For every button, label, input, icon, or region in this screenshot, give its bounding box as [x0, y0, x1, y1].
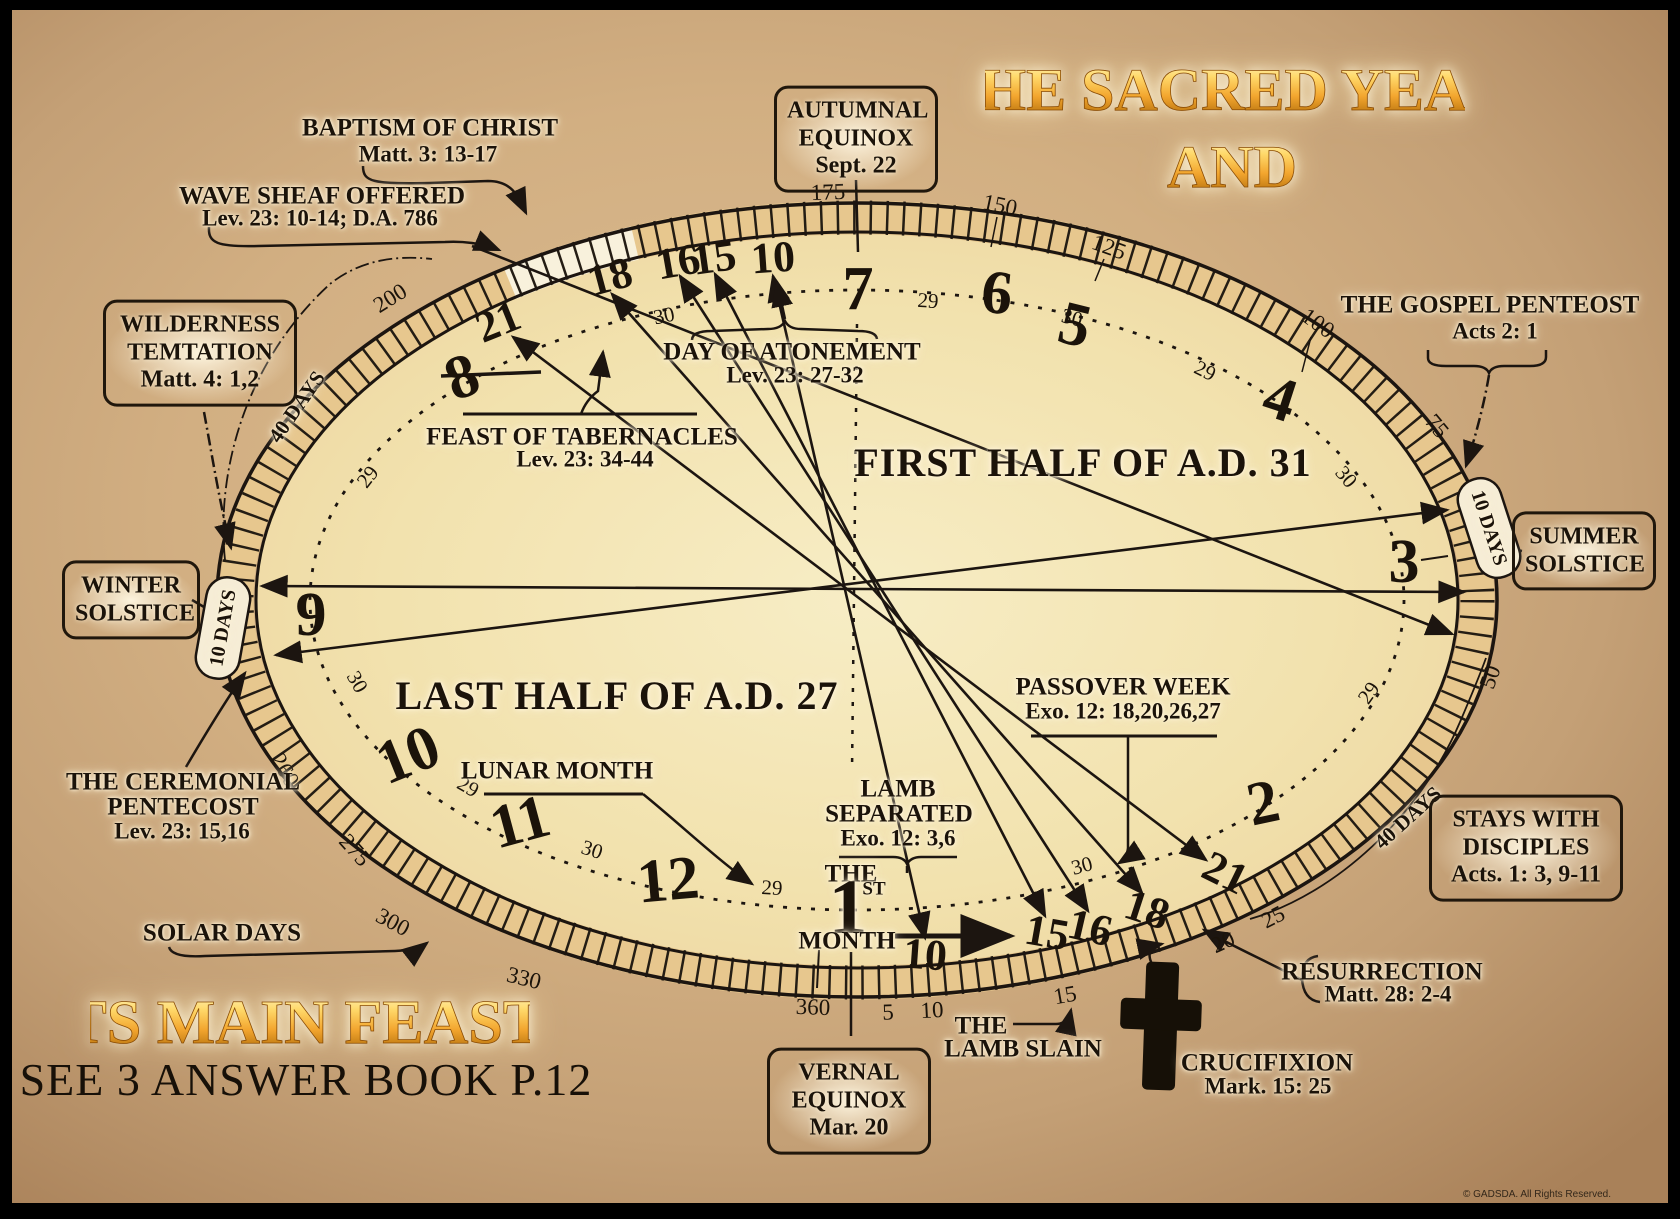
- winter-line1: WINTER: [75, 572, 187, 600]
- lunar-7-6: 29: [917, 290, 939, 312]
- summer-solstice-box: SUMMER SOLSTICE: [1512, 511, 1656, 590]
- autumnal-box: AUTUMNAL EQUINOX Sept. 22: [774, 86, 938, 193]
- stays-ref: Acts. 1: 3, 9-11: [1442, 862, 1610, 890]
- autumnal-line2: EQUINOX: [787, 125, 925, 153]
- lamb-slain-pointer: [1013, 1010, 1071, 1024]
- month-7: 7: [843, 258, 874, 320]
- crucifixion-title: CRUCIFIXION: [1181, 1051, 1353, 1076]
- poster: THE SACRED YEAR AND ITS MAIN FEASTS SEE …: [0, 0, 1680, 1219]
- see-answer-book: SEE 3 ANSWER BOOK P.12: [20, 1057, 593, 1103]
- last-half-label: LAST HALF OF A.D. 27: [395, 676, 838, 716]
- gospel-bracket: [1428, 350, 1546, 373]
- scale-10: 10: [920, 998, 944, 1022]
- first-half-label: FIRST HALF OF A.D. 31: [854, 443, 1311, 483]
- wilderness-line2: TEMTATION: [116, 339, 284, 367]
- winter-line2: SOLSTICE: [75, 600, 187, 628]
- tishri-day-15: 15: [689, 233, 739, 283]
- month-3: 3: [1389, 531, 1420, 593]
- resurrection-ref: Matt. 28: 2-4: [1324, 983, 1451, 1006]
- wilderness-ref: Matt. 4: 1,2: [116, 367, 284, 395]
- atonement-title: DAY OF ATONEMENT: [663, 340, 920, 365]
- gospel-ref: Acts 2: 1: [1452, 320, 1538, 343]
- feasts-title: ITS MAIN FEASTS: [90, 985, 530, 1065]
- scale-360: 360: [795, 995, 830, 1019]
- wave-sheaf-ref: Lev. 23: 10-14; D.A. 786: [202, 207, 438, 230]
- vernal-box: VERNAL EQUINOX Mar. 20: [767, 1048, 931, 1155]
- ceremonial-line2: PENTECOST: [107, 795, 258, 820]
- scale-15: 15: [1052, 982, 1079, 1009]
- copyright: © GADSDA. All Rights Reserved.: [1463, 1190, 1611, 1200]
- nisan-day-10: 10: [902, 932, 949, 979]
- autumnal-ref: Sept. 22: [787, 153, 925, 181]
- lamb-sep-line1: LAMB: [861, 777, 936, 802]
- lamb-sep-line2: SEPARATED: [825, 802, 973, 827]
- tabernacles-ref: Lev. 23: 34-44: [516, 448, 653, 471]
- autumnal-line1: AUTUMNAL: [787, 98, 925, 126]
- solar-days-label: SOLAR DAYS: [143, 921, 301, 946]
- summer-line2: SOLSTICE: [1525, 551, 1643, 579]
- ceremonial-line1: THE CEREMONIAL: [66, 770, 300, 795]
- wilderness-line1: WILDERNESS: [116, 312, 284, 340]
- month-9: 9: [296, 584, 327, 646]
- stays-with-disciples-box: STAYS WITH DISCIPLES Acts. 1: 3, 9-11: [1429, 795, 1623, 902]
- title-line2: AND: [1167, 134, 1297, 200]
- atonement-ref: Lev. 23: 27-32: [726, 364, 863, 387]
- baptism-ref: Matt. 3: 13-17: [359, 143, 498, 166]
- winter-solstice-box: WINTER SOLSTICE: [62, 560, 200, 639]
- scale-5: 5: [882, 1000, 894, 1023]
- vernal-line1: VERNAL: [780, 1060, 918, 1088]
- lunar-month-label: LUNAR MONTH: [461, 759, 653, 784]
- crucifixion-ref: Mark. 15: 25: [1204, 1075, 1331, 1098]
- passover-title: PASSOVER WEEK: [1015, 675, 1230, 700]
- lamb-slain-line2: LAMB SLAIN: [944, 1037, 1102, 1062]
- month-12: 12: [634, 846, 701, 913]
- stays-line1: STAYS WITH: [1442, 807, 1610, 835]
- ceremonial-pointer: [186, 673, 245, 767]
- month1-month: MONTH: [798, 929, 895, 954]
- feasts-text: ITS MAIN FEASTS: [90, 989, 530, 1057]
- passover-ref: Exo. 12: 18,20,26,27: [1025, 700, 1221, 723]
- vernal-ref: Mar. 20: [780, 1115, 918, 1143]
- vernal-line2: EQUINOX: [780, 1087, 918, 1115]
- lunar-1-12: 29: [761, 877, 783, 899]
- lunar-8-7: 30: [652, 304, 677, 329]
- summer-line1: SUMMER: [1525, 523, 1643, 551]
- gospel-title: THE GOSPEL PENTEOST: [1341, 293, 1640, 318]
- main-title: THE SACRED YEAR AND: [985, 55, 1465, 205]
- baptism-title: BAPTISM OF CHRIST: [302, 116, 558, 141]
- title-line1: THE SACRED YEAR: [985, 57, 1465, 123]
- lamb-sep-ref: Exo. 12: 3,6: [841, 827, 956, 850]
- nisan-day-15: 15: [1022, 908, 1073, 959]
- tishri-day-10: 10: [750, 235, 797, 282]
- month-6: 6: [978, 261, 1015, 326]
- stays-line2: DISCIPLES: [1442, 834, 1610, 862]
- gospel-pointer: [1466, 375, 1489, 466]
- wilderness-box: WILDERNESS TEMTATION Matt. 4: 1,2: [103, 300, 297, 407]
- ceremonial-ref: Lev. 23: 15,16: [114, 820, 249, 843]
- month1-st: ST: [862, 880, 885, 899]
